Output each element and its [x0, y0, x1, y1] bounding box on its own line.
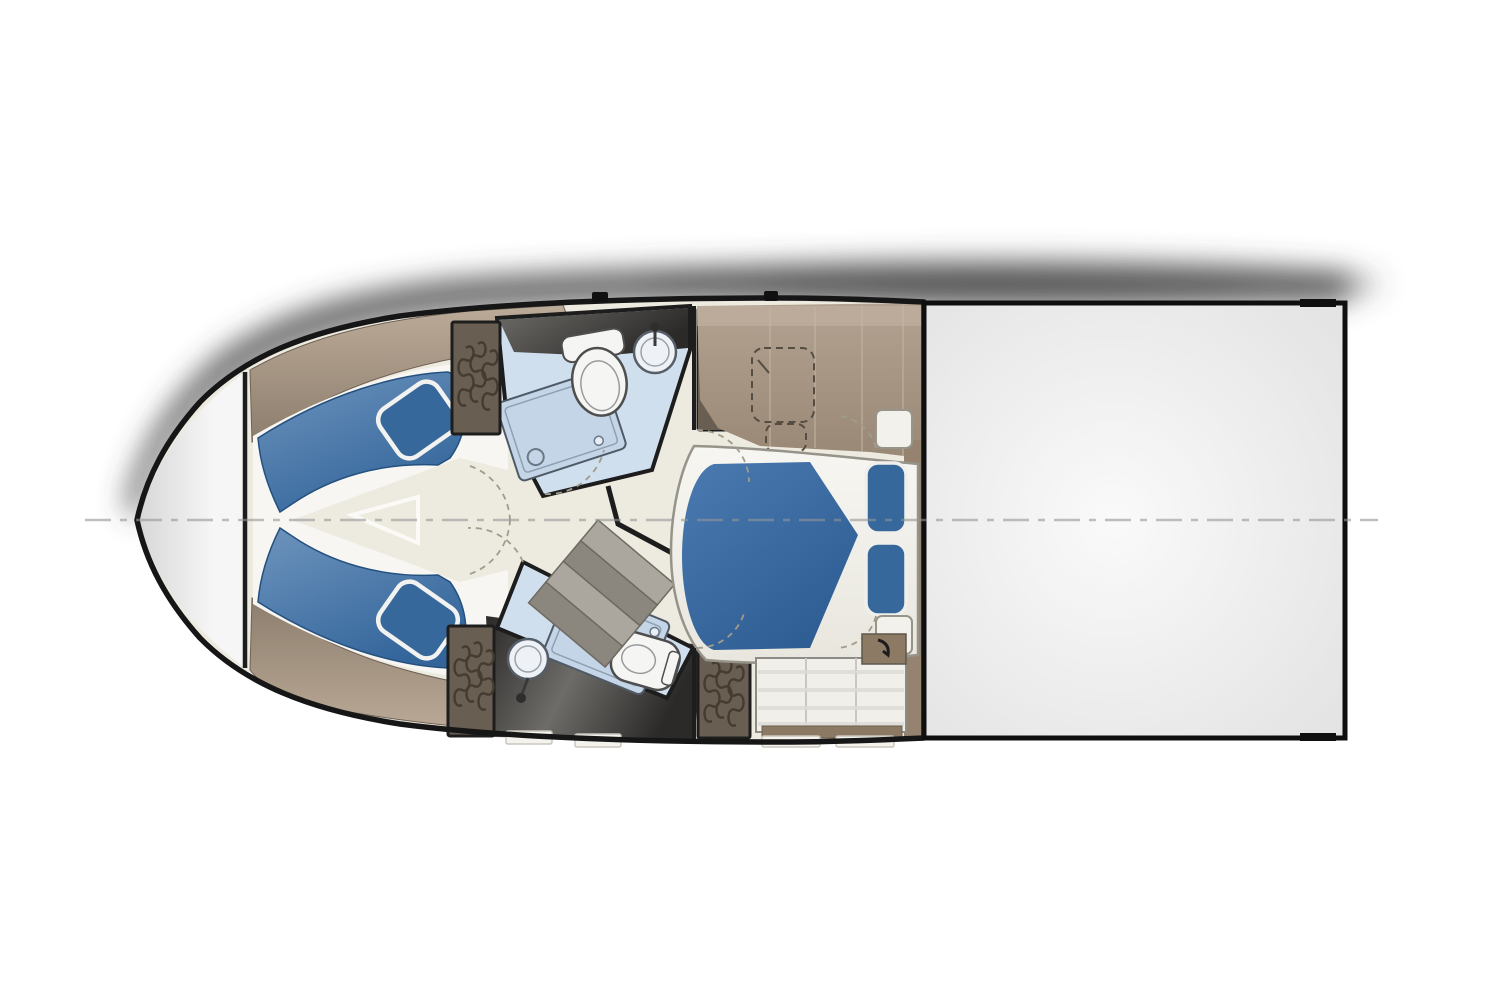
dresser [756, 658, 906, 738]
deck-hatch-tab-2 [764, 291, 778, 301]
yacht-floorplan-svg [0, 0, 1500, 1000]
wardrobe-forward-port [452, 322, 500, 434]
wardrobe-aft-port [448, 626, 494, 736]
deck-hatch-tab-1 [592, 292, 608, 302]
floorplan-canvas [0, 0, 1500, 1000]
corner-cabinet [862, 634, 906, 664]
